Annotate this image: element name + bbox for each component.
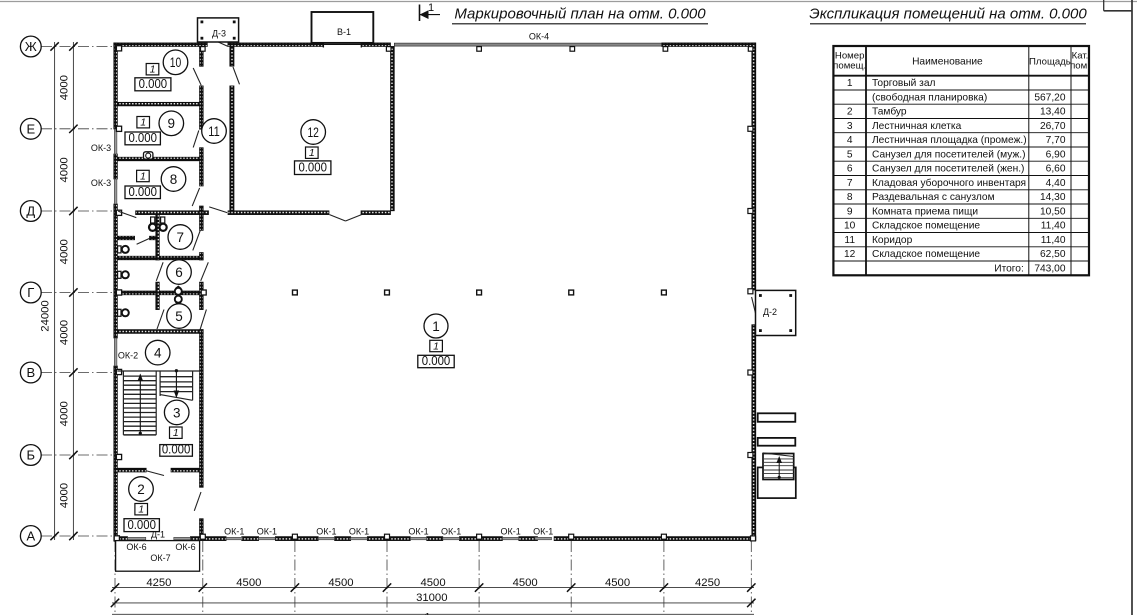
svg-text:Складское помещение: Складское помещение (872, 221, 980, 232)
svg-text:4500: 4500 (420, 577, 445, 589)
svg-text:Площадь: Площадь (1029, 57, 1071, 68)
svg-text:10: 10 (170, 55, 182, 70)
svg-text:Д-3: Д-3 (212, 28, 226, 38)
svg-text:ОК-6: ОК-6 (175, 542, 195, 552)
svg-text:62,50: 62,50 (1040, 249, 1066, 260)
svg-text:11: 11 (844, 235, 855, 246)
svg-text:4000: 4000 (59, 157, 71, 182)
svg-text:Экспликация помещений на отм.: Экспликация помещений на отм. 0.000 (809, 6, 1087, 23)
svg-text:1: 1 (140, 117, 146, 129)
svg-text:0.000: 0.000 (127, 518, 156, 532)
svg-text:31000: 31000 (416, 592, 447, 604)
svg-text:13,40: 13,40 (1040, 107, 1066, 118)
svg-text:4250: 4250 (146, 577, 171, 589)
svg-text:ОК-1: ОК-1 (349, 527, 369, 537)
svg-text:Г: Г (27, 285, 34, 300)
svg-text:ОК-3: ОК-3 (91, 178, 111, 188)
svg-text:Коридор: Коридор (872, 235, 913, 246)
svg-text:Б: Б (27, 448, 36, 463)
svg-text:4,40: 4,40 (1046, 178, 1066, 189)
svg-text:0.000: 0.000 (128, 185, 157, 199)
svg-text:0.000: 0.000 (422, 354, 451, 368)
svg-text:Е: Е (26, 121, 35, 136)
svg-text:6,60: 6,60 (1046, 164, 1066, 175)
svg-text:2: 2 (847, 107, 853, 118)
svg-text:Санузел для посетителей (муж.): Санузел для посетителей (муж.) (872, 149, 1025, 160)
svg-text:4500: 4500 (513, 577, 538, 589)
svg-text:7: 7 (177, 230, 185, 245)
svg-text:Лестничная площадка (промеж.): Лестничная площадка (промеж.) (872, 135, 1027, 146)
svg-text:Раздевальная с санузлом: Раздевальная с санузлом (872, 192, 995, 203)
svg-text:1: 1 (432, 319, 440, 334)
svg-text:8: 8 (847, 192, 853, 203)
svg-text:4000: 4000 (59, 239, 71, 264)
svg-text:(свободная планировка): (свободная планировка) (872, 91, 987, 103)
svg-text:10,50: 10,50 (1040, 206, 1066, 217)
svg-text:11,40: 11,40 (1041, 235, 1066, 246)
svg-text:ОК-1: ОК-1 (316, 527, 336, 537)
svg-text:Итого:: Итого: (994, 263, 1024, 274)
svg-text:ОК-7: ОК-7 (150, 553, 170, 563)
svg-text:ОК-1: ОК-1 (533, 527, 553, 537)
svg-text:11: 11 (208, 124, 220, 139)
svg-text:Складское помещение: Складское помещение (872, 249, 980, 260)
svg-text:4000: 4000 (59, 75, 71, 100)
svg-text:9: 9 (847, 206, 853, 217)
svg-text:ОК-1: ОК-1 (441, 527, 461, 537)
svg-text:1: 1 (433, 341, 439, 353)
svg-text:Д: Д (26, 204, 35, 219)
svg-text:В-1: В-1 (337, 27, 351, 37)
svg-text:1: 1 (138, 504, 144, 516)
svg-text:3: 3 (173, 405, 181, 420)
svg-text:4500: 4500 (236, 577, 261, 589)
svg-text:4: 4 (154, 345, 162, 360)
svg-text:11,40: 11,40 (1041, 221, 1066, 232)
svg-text:567,20: 567,20 (1034, 92, 1065, 103)
svg-text:ОК-6: ОК-6 (126, 542, 146, 552)
svg-text:5: 5 (847, 149, 853, 160)
svg-text:1: 1 (140, 171, 146, 183)
svg-text:4000: 4000 (59, 320, 71, 345)
svg-text:ОК-1: ОК-1 (224, 527, 244, 537)
svg-text:ОК-3: ОК-3 (91, 143, 111, 153)
svg-text:4500: 4500 (605, 577, 630, 589)
svg-text:1: 1 (847, 78, 853, 89)
svg-text:0.000: 0.000 (139, 77, 168, 91)
svg-text:4: 4 (847, 135, 853, 146)
svg-text:Д-2: Д-2 (763, 307, 777, 317)
svg-text:ОК-1: ОК-1 (408, 527, 428, 537)
svg-text:7: 7 (847, 178, 853, 189)
svg-text:Кладовая уборочного инвентаря: Кладовая уборочного инвентаря (872, 177, 1026, 189)
svg-text:Комната приема пищи: Комната приема пищи (872, 206, 978, 217)
svg-text:1: 1 (150, 64, 156, 76)
svg-text:14,30: 14,30 (1040, 192, 1066, 203)
svg-text:7,70: 7,70 (1046, 135, 1066, 146)
svg-text:А: А (26, 529, 35, 544)
svg-text:Ж: Ж (25, 39, 37, 54)
svg-text:ОК-2: ОК-2 (118, 350, 138, 360)
svg-text:Тамбур: Тамбур (872, 106, 907, 118)
svg-text:3: 3 (847, 121, 853, 132)
svg-text:26,70: 26,70 (1040, 121, 1066, 132)
svg-text:4000: 4000 (59, 483, 71, 508)
svg-text:2: 2 (137, 482, 145, 497)
svg-text:0.000: 0.000 (298, 161, 327, 175)
svg-text:В: В (26, 365, 35, 380)
svg-text:4000: 4000 (59, 401, 71, 426)
svg-text:12: 12 (844, 249, 856, 260)
svg-text:Лестничная клетка: Лестничная клетка (872, 121, 962, 132)
svg-text:0.000: 0.000 (162, 442, 191, 456)
svg-text:пом.: пом. (1070, 61, 1090, 72)
svg-text:9: 9 (168, 116, 176, 131)
svg-text:ОК-1: ОК-1 (500, 527, 520, 537)
svg-text:6: 6 (847, 164, 853, 175)
svg-text:12: 12 (307, 125, 319, 140)
svg-text:Наименование: Наименование (912, 57, 983, 68)
svg-text:6,90: 6,90 (1046, 149, 1066, 160)
svg-text:6: 6 (175, 265, 183, 280)
svg-text:ОК-1: ОК-1 (257, 527, 277, 537)
svg-text:ОК-4: ОК-4 (529, 32, 549, 42)
svg-text:1: 1 (309, 147, 315, 159)
svg-text:помещ.: помещ. (833, 61, 866, 72)
svg-text:Маркировочный план на отм. 0.0: Маркировочный план на отм. 0.000 (454, 6, 706, 23)
svg-text:1: 1 (428, 2, 434, 14)
svg-text:Торговый зал: Торговый зал (872, 78, 936, 89)
svg-text:743,00: 743,00 (1034, 263, 1065, 274)
svg-text:1: 1 (173, 427, 179, 439)
svg-text:Санузел для посетителей (жен.): Санузел для посетителей (жен.) (872, 164, 1024, 175)
svg-text:10: 10 (844, 221, 856, 232)
svg-text:0.000: 0.000 (128, 131, 157, 145)
svg-text:1: 1 (424, 612, 430, 615)
svg-text:8: 8 (170, 172, 178, 187)
svg-text:4250: 4250 (695, 577, 720, 589)
svg-text:5: 5 (175, 309, 183, 324)
svg-text:4500: 4500 (328, 577, 353, 589)
svg-text:24000: 24000 (40, 300, 52, 331)
